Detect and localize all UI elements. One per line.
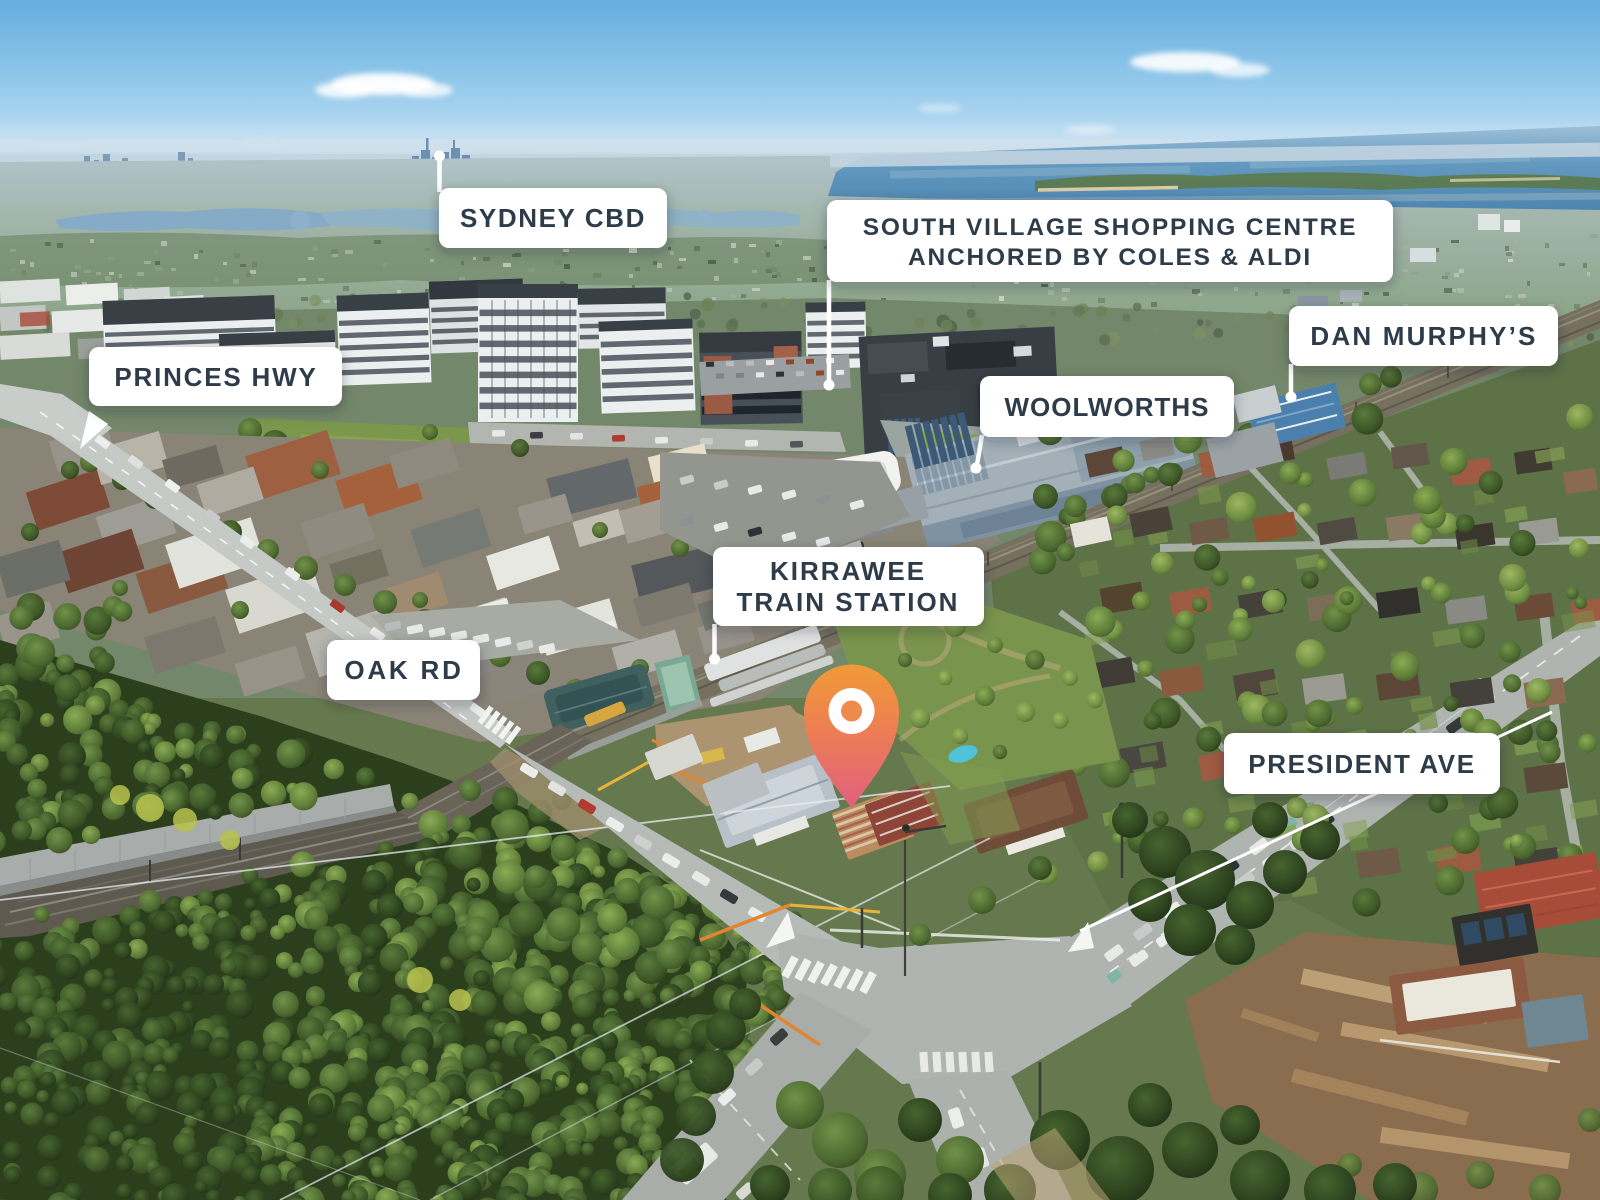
svg-text:OAK RD: OAK RD: [344, 655, 463, 685]
svg-text:SOUTH VILLAGE SHOPPING CENTRE: SOUTH VILLAGE SHOPPING CENTRE: [863, 214, 1358, 241]
svg-text:KIRRAWEE: KIRRAWEE: [770, 556, 926, 586]
svg-text:ANCHORED BY COLES & ALDI: ANCHORED BY COLES & ALDI: [908, 244, 1312, 271]
svg-text:PRINCES HWY: PRINCES HWY: [114, 362, 317, 392]
svg-text:PRESIDENT AVE: PRESIDENT AVE: [1248, 749, 1475, 779]
svg-text:TRAIN STATION: TRAIN STATION: [737, 587, 960, 617]
svg-text:SYDNEY CBD: SYDNEY CBD: [460, 203, 646, 233]
svg-text:WOOLWORTHS: WOOLWORTHS: [1005, 392, 1210, 422]
svg-text:DAN MURPHY’S: DAN MURPHY’S: [1310, 321, 1537, 351]
